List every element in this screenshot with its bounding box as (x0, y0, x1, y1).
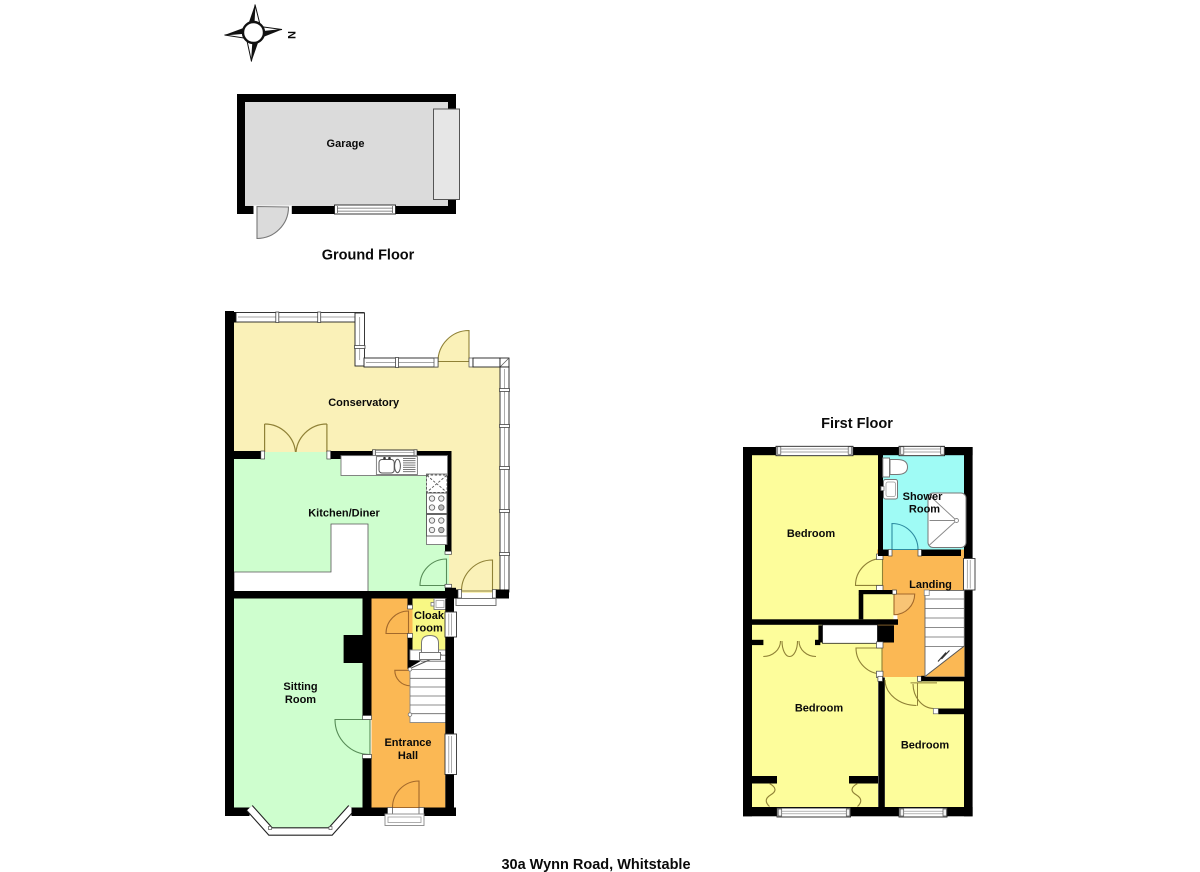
svg-text:Bedroom: Bedroom (787, 528, 836, 540)
svg-text:Entrance: Entrance (384, 737, 431, 749)
svg-text:First Floor: First Floor (821, 416, 893, 432)
svg-text:Ground Floor: Ground Floor (322, 248, 415, 264)
svg-text:Conservatory: Conservatory (328, 397, 400, 409)
svg-text:N: N (285, 31, 297, 39)
svg-text:Bedroom: Bedroom (795, 703, 844, 715)
svg-text:room: room (415, 623, 443, 635)
svg-text:30a Wynn Road, Whitstable: 30a Wynn Road, Whitstable (501, 857, 690, 872)
svg-text:Sitting: Sitting (283, 681, 317, 693)
svg-text:Bedroom: Bedroom (901, 740, 950, 752)
svg-text:Shower: Shower (903, 491, 943, 503)
svg-text:Room: Room (285, 694, 316, 706)
svg-text:Room: Room (909, 504, 940, 516)
svg-text:Kitchen/Diner: Kitchen/Diner (308, 508, 380, 520)
svg-text:Landing: Landing (909, 579, 952, 591)
svg-text:Garage: Garage (327, 138, 365, 150)
svg-text:Hall: Hall (398, 750, 418, 762)
svg-text:Cloak: Cloak (414, 610, 445, 622)
